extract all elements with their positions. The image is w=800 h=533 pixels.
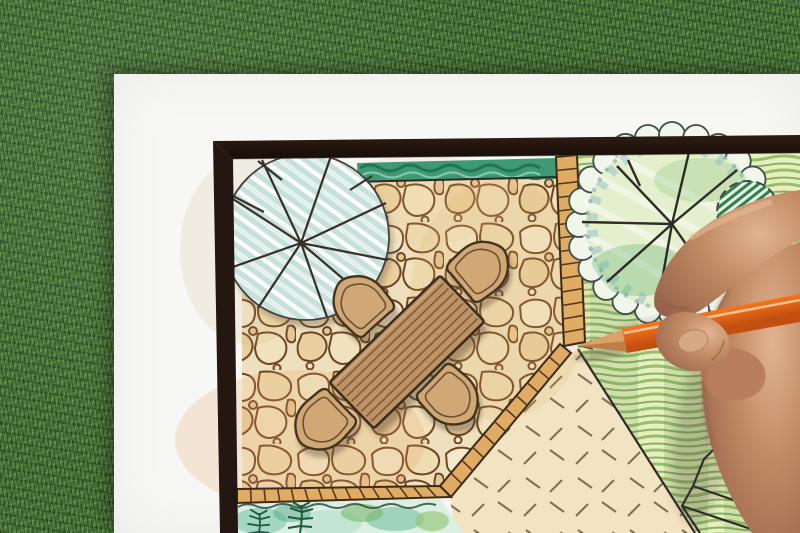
photo-scene — [0, 0, 800, 533]
garden-plan-drawing — [0, 0, 800, 533]
